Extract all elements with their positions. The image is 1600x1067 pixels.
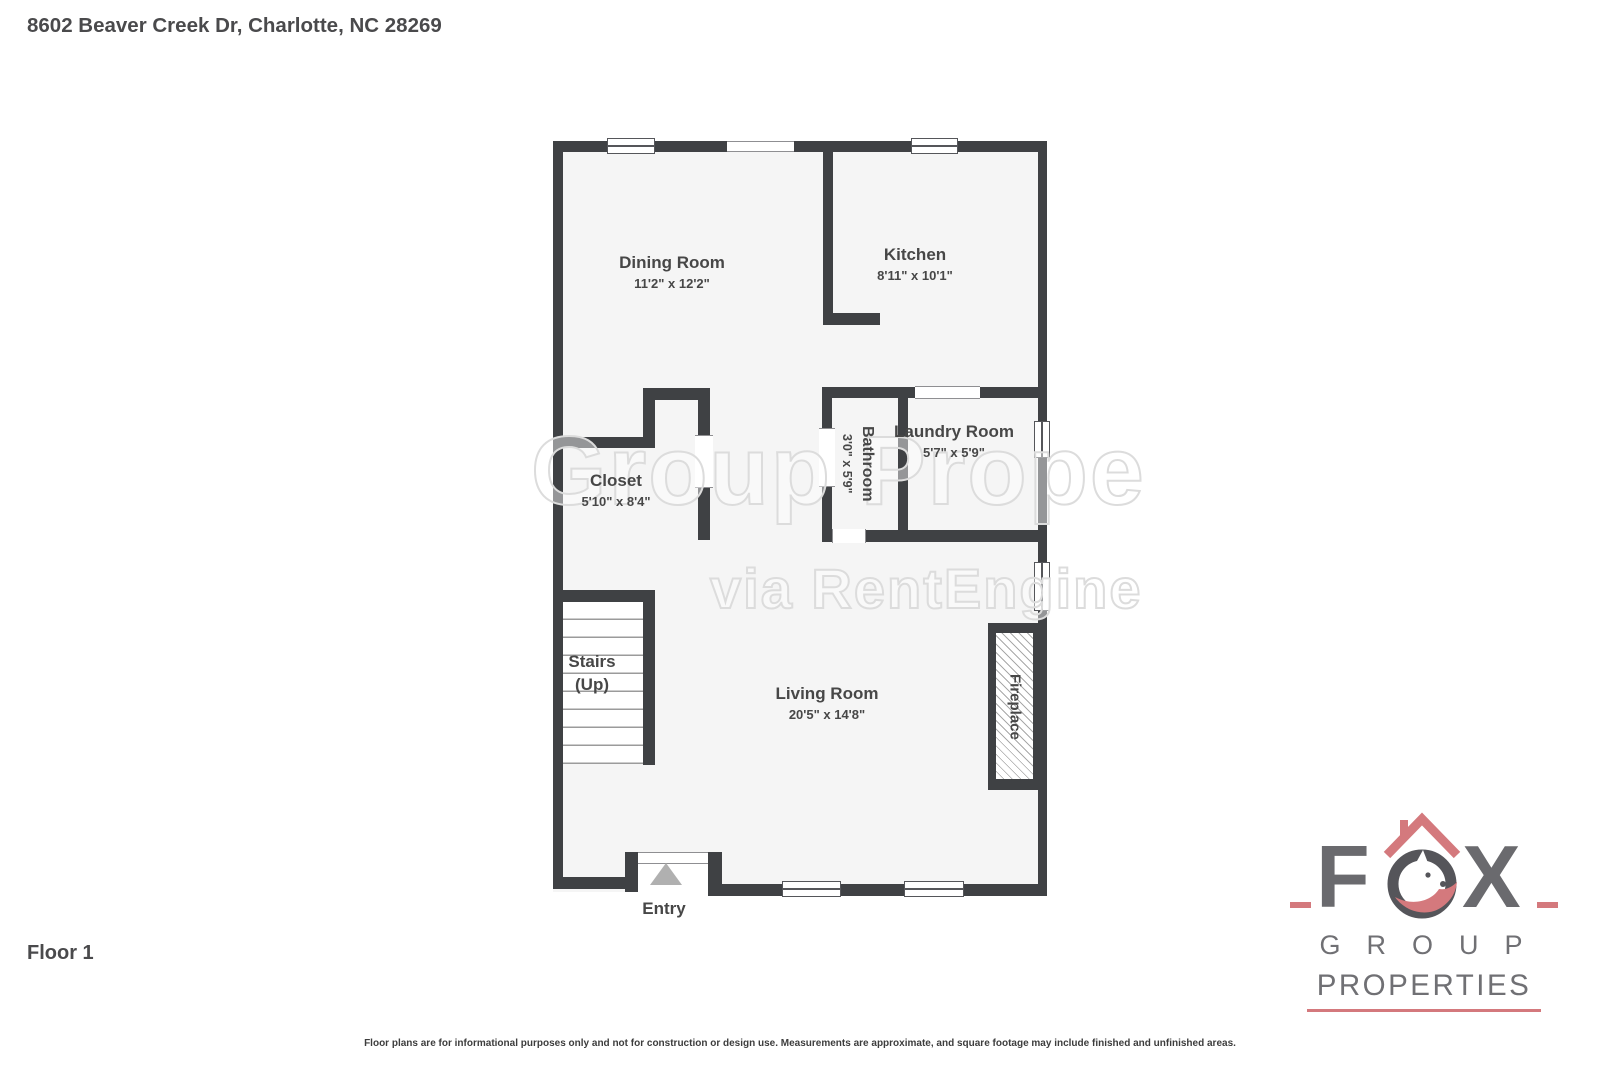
- wall-stairs-right: [643, 590, 655, 765]
- room-dims: 5'10" x 8'4": [581, 492, 650, 511]
- opening-laundry-top: [915, 386, 980, 399]
- room-name: Living Room: [776, 682, 879, 705]
- room-name: Bathroom: [856, 406, 878, 522]
- room-name: Dining Room: [619, 251, 725, 274]
- room-label-bathroom: Bathroom 3'0" x 5'9": [838, 406, 878, 522]
- room-dims: 20'5" x 14'8": [776, 705, 879, 724]
- room-name: Closet: [581, 469, 650, 492]
- window-top-dining: [607, 138, 655, 154]
- wall-bath-laundry-divider: [898, 398, 908, 533]
- wall-kitchen-divider: [823, 152, 833, 325]
- room-label-laundry: Laundry Room 5'7" x 5'9": [894, 420, 1014, 462]
- room-dims: 8'11" x 10'1": [877, 266, 953, 285]
- room-name: Laundry Room: [894, 420, 1014, 443]
- door-bathroom-left: [819, 428, 835, 487]
- logo-fox-row: F X: [1290, 806, 1558, 920]
- logo-dash-right: [1537, 902, 1558, 908]
- room-sub: (Up): [568, 673, 615, 696]
- disclaimer-text: Floor plans are for informational purpos…: [0, 1038, 1600, 1049]
- logo-group-text: GROUP: [1290, 930, 1558, 961]
- window-top-kitchen: [911, 138, 958, 154]
- door-closet-wall: [695, 435, 713, 488]
- wall-left: [553, 141, 563, 889]
- room-label-closet: Closet 5'10" x 8'4": [581, 469, 650, 511]
- room-name: Entry: [642, 897, 685, 920]
- door-bathroom-bottom: [832, 529, 866, 543]
- wall-closet-top: [563, 437, 655, 448]
- wall-kitchen-stub: [823, 313, 880, 325]
- room-dims: 11'2" x 12'2": [619, 274, 725, 293]
- room-label-fireplace: Fireplace: [998, 654, 1032, 759]
- room-label-living: Living Room 20'5" x 14'8": [776, 682, 879, 724]
- fox-group-properties-logo: F X GROUP PROPERTIES: [1290, 806, 1558, 1012]
- room-dims: 5'7" x 5'9": [894, 443, 1014, 462]
- room-name: Stairs: [568, 650, 615, 673]
- wall-right: [1038, 141, 1047, 896]
- wall-bottom-right: [708, 884, 1047, 896]
- room-dims: 3'0" x 5'9": [838, 406, 856, 522]
- logo-dash-left: [1290, 902, 1311, 908]
- logo-properties-text: PROPERTIES: [1290, 969, 1558, 1003]
- room-label-stairs: Stairs (Up): [568, 650, 615, 696]
- floor-label: Floor 1: [27, 942, 94, 965]
- window-right-laundry: [1034, 421, 1050, 458]
- room-name: Kitchen: [877, 243, 953, 266]
- logo-underline: [1307, 1009, 1541, 1012]
- wall-stairs-top: [553, 590, 655, 602]
- entry-arrow-icon: [650, 863, 682, 885]
- opening-top-wall: [727, 141, 794, 152]
- room-label-dining: Dining Room 11'2" x 12'2": [619, 251, 725, 293]
- room-label-entry: Entry: [642, 897, 685, 920]
- logo-letter-x: X: [1462, 834, 1521, 920]
- fox-head-icon: [1382, 808, 1462, 924]
- window-bottom-living-1: [782, 881, 841, 897]
- wall-entry-stub-left: [625, 852, 638, 892]
- window-right-living: [1034, 562, 1050, 611]
- room-name: Fireplace: [1007, 674, 1024, 740]
- room-label-kitchen: Kitchen 8'11" x 10'1": [877, 243, 953, 285]
- logo-letter-f: F: [1316, 834, 1370, 920]
- window-bottom-living-2: [904, 881, 964, 897]
